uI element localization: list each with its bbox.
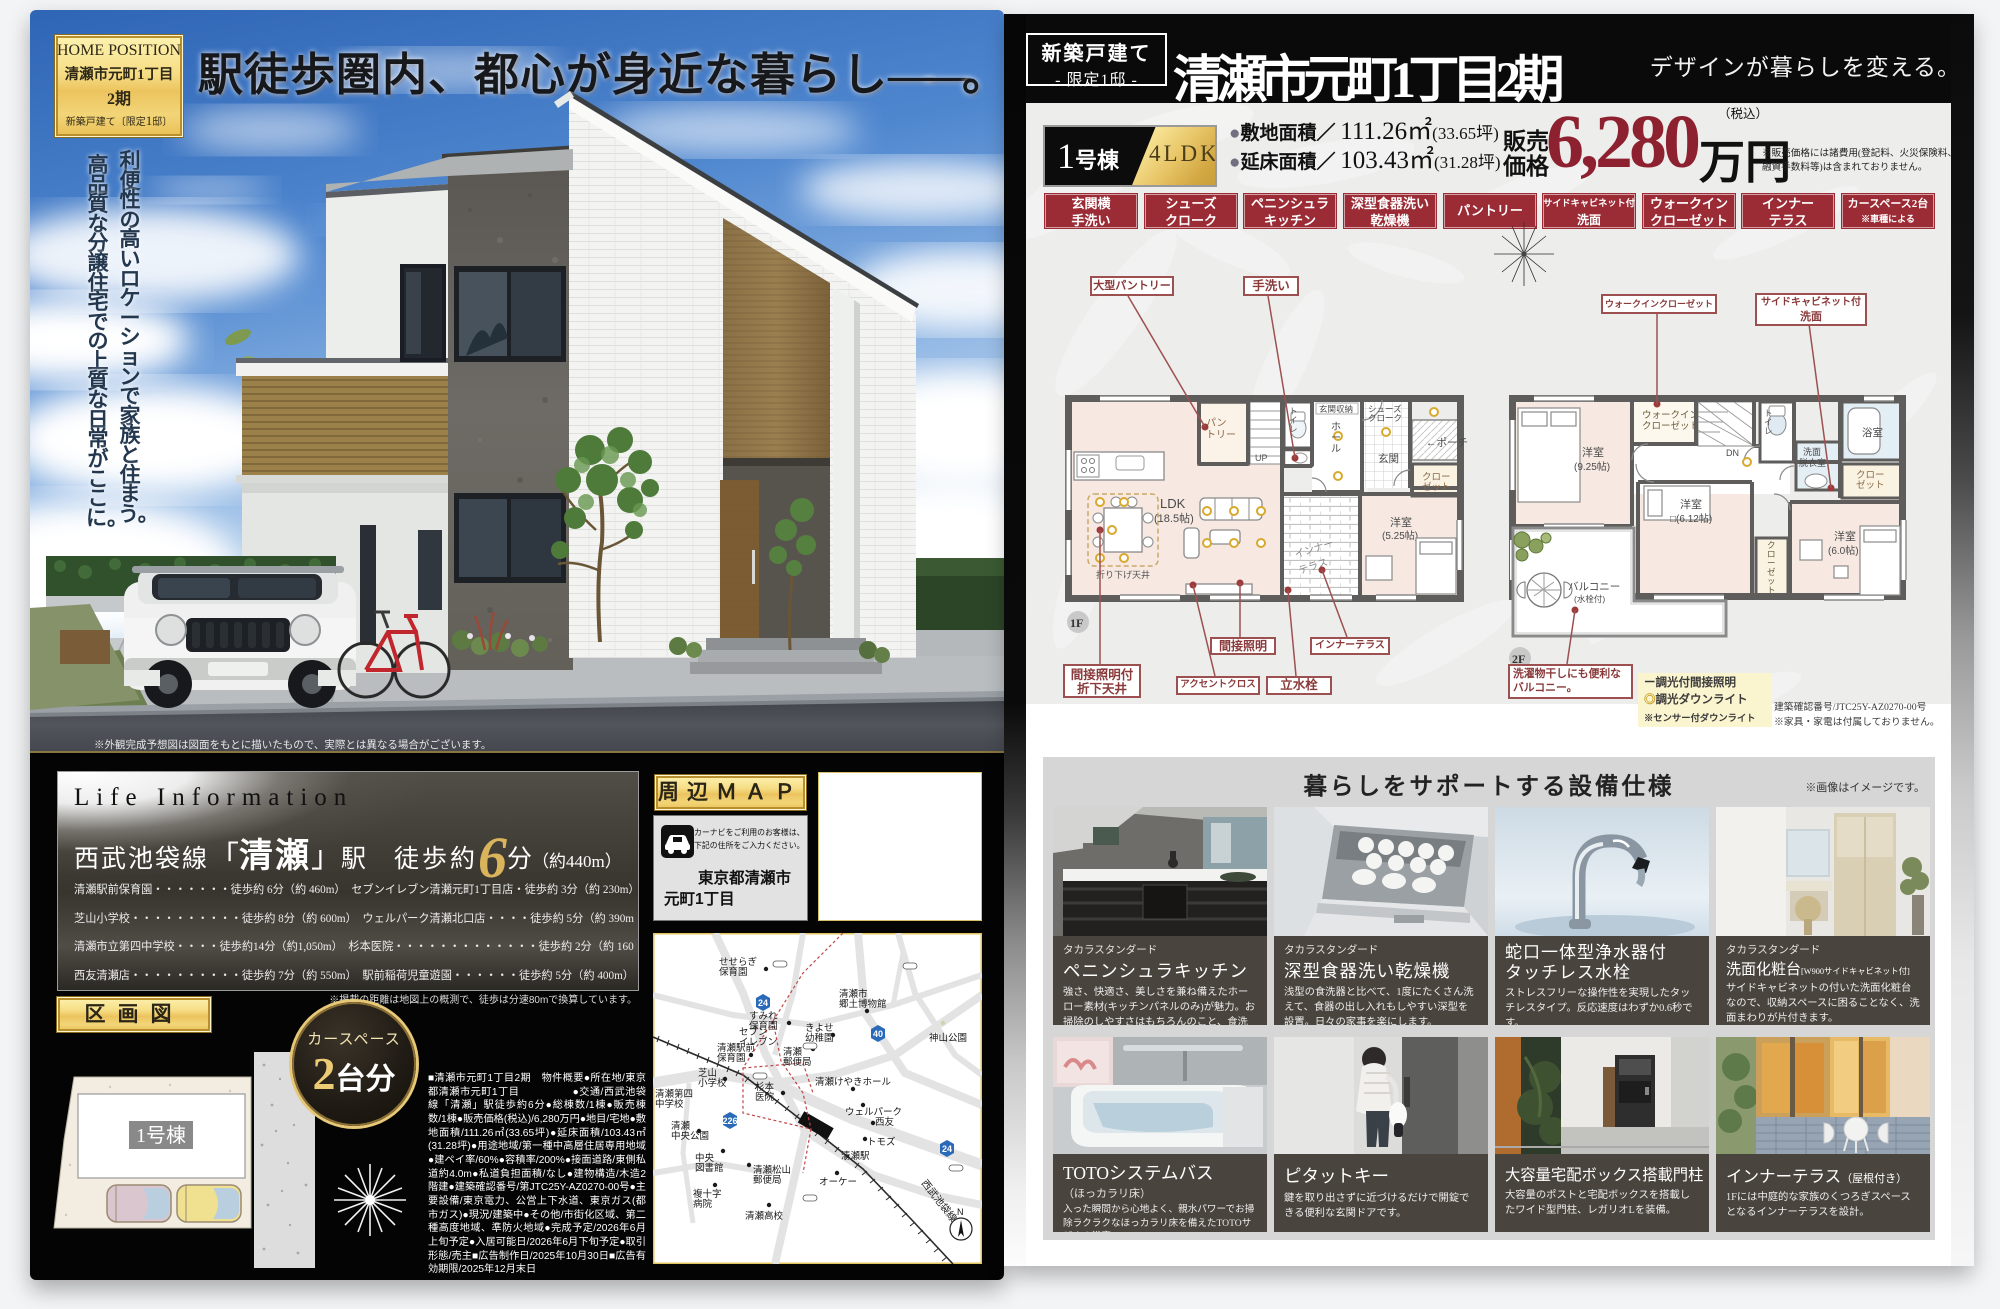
svg-text:図書館: 図書館 [695, 1162, 724, 1174]
svg-text:西友: 西友 [875, 1116, 895, 1128]
svg-text:保育園: 保育園 [717, 1052, 746, 1064]
svg-text:1号棟: 1号棟 [136, 1124, 186, 1147]
svg-text:郵便局: 郵便局 [753, 1174, 782, 1186]
svg-text:226: 226 [722, 1116, 737, 1126]
svg-text:清瀬駅: 清瀬駅 [841, 1150, 870, 1162]
svg-text:中央公園: 中央公園 [671, 1130, 709, 1142]
svg-text:清瀬けやきホール: 清瀬けやきホール [815, 1076, 892, 1088]
svg-text:イレブン: イレブン [739, 1036, 777, 1048]
svg-text:郷土博物館: 郷土博物館 [839, 998, 887, 1010]
svg-text:※外観完成予想図は図面をもとに描いたもので、実際とは異なる場: ※外観完成予想図は図面をもとに描いたもので、実際とは異なる場合がございます。 [94, 738, 491, 751]
svg-text:清瀬高校: 清瀬高校 [745, 1210, 784, 1222]
svg-text:オーケー: オーケー [819, 1177, 857, 1188]
svg-text:郵便局: 郵便局 [783, 1056, 812, 1068]
svg-text:神山公園: 神山公園 [929, 1032, 967, 1044]
svg-text:医院: 医院 [755, 1091, 775, 1103]
svg-text:40: 40 [873, 1029, 883, 1039]
svg-text:トモズ: トモズ [867, 1136, 896, 1148]
svg-text:24: 24 [758, 998, 768, 1008]
svg-text:病院: 病院 [693, 1198, 713, 1210]
svg-text:24: 24 [942, 1144, 952, 1154]
svg-text:小学校: 小学校 [698, 1077, 727, 1089]
svg-text:保育園: 保育園 [719, 966, 748, 978]
svg-text:幼稚園: 幼稚園 [805, 1032, 834, 1044]
svg-text:N: N [957, 1207, 964, 1217]
svg-text:中学校: 中学校 [655, 1098, 684, 1110]
